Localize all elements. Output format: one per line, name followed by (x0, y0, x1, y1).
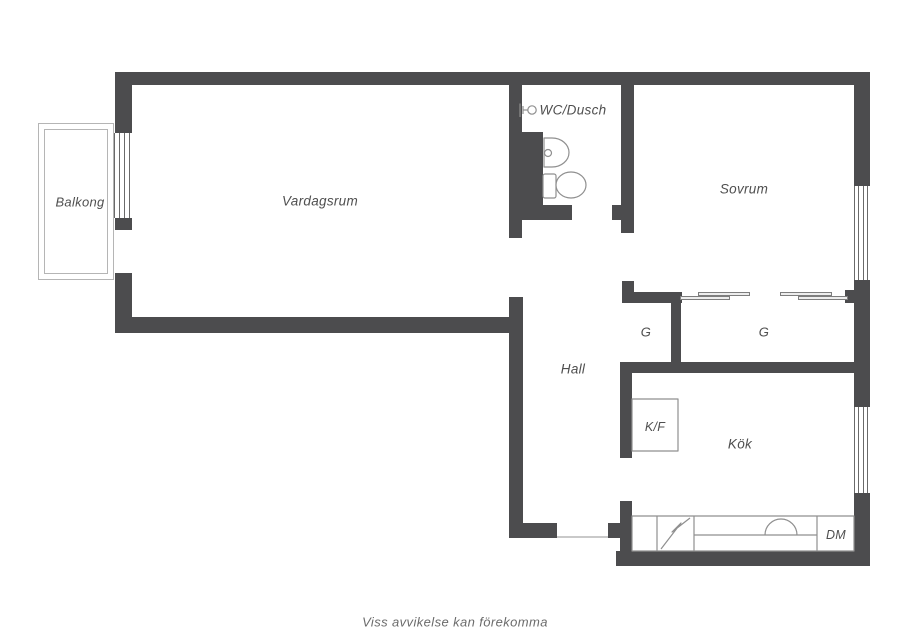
window-glazing-line (124, 133, 125, 218)
window-glazing-line (854, 186, 855, 280)
room-label-sovrum: Sovrum (720, 182, 768, 197)
room-label-balkong: Balkong (55, 195, 104, 210)
closet-label-g-large: G (759, 325, 769, 340)
kok-window (854, 407, 868, 493)
wall (854, 72, 870, 186)
wall (621, 85, 634, 233)
kitchen-counter (632, 516, 854, 551)
sink-tap (545, 150, 552, 157)
toilet-tank (543, 174, 556, 198)
wall (620, 373, 632, 458)
window-glazing-line (854, 407, 855, 493)
room-label-vardagsrum: Vardagsrum (282, 194, 358, 209)
window-glazing-line (119, 133, 120, 218)
stove-icon (661, 518, 690, 549)
window-glazing-line (858, 186, 859, 280)
room-label-hall: Hall (561, 362, 585, 377)
wall (671, 302, 681, 362)
toilet-bowl (556, 172, 586, 198)
floorplan-canvas: BalkongVardagsrumWC/DuschSovrumHallGGK/F… (0, 0, 905, 640)
wall (115, 218, 132, 230)
window-glazing-line (863, 407, 864, 493)
kitchen-sink (765, 519, 797, 535)
sovrum-window (854, 186, 868, 280)
wall (509, 297, 523, 538)
room-label-kok: Kök (728, 437, 752, 452)
wall (115, 72, 870, 85)
wall (115, 72, 132, 133)
window-glazing-line (858, 407, 859, 493)
appliance-label-dm: DM (826, 528, 846, 542)
wall (608, 523, 620, 538)
wall (616, 551, 870, 566)
wall (854, 280, 870, 407)
entry-door-threshold (557, 536, 608, 538)
window-glazing-line (867, 186, 868, 280)
appliance-label-kf: K/F (645, 420, 665, 434)
wall (620, 362, 854, 373)
balcony-door-window (114, 133, 130, 218)
wardrobe-sliding-door (798, 296, 848, 300)
wall (509, 523, 557, 538)
window-glazing-line (114, 133, 115, 218)
wardrobe-sliding-door (680, 296, 730, 300)
wall (115, 317, 523, 333)
window-glazing-line (867, 407, 868, 493)
wall (509, 205, 572, 220)
closet-label-g-small: G (641, 325, 651, 340)
shower-icon (528, 106, 536, 114)
window-glazing-line (129, 133, 130, 218)
disclaimer-text: Viss avvikelse kan förekomma (362, 615, 548, 630)
bathroom-sink (544, 138, 569, 167)
room-label-wc-dusch: WC/Dusch (540, 103, 607, 118)
wall (620, 501, 632, 556)
window-glazing-line (863, 186, 864, 280)
